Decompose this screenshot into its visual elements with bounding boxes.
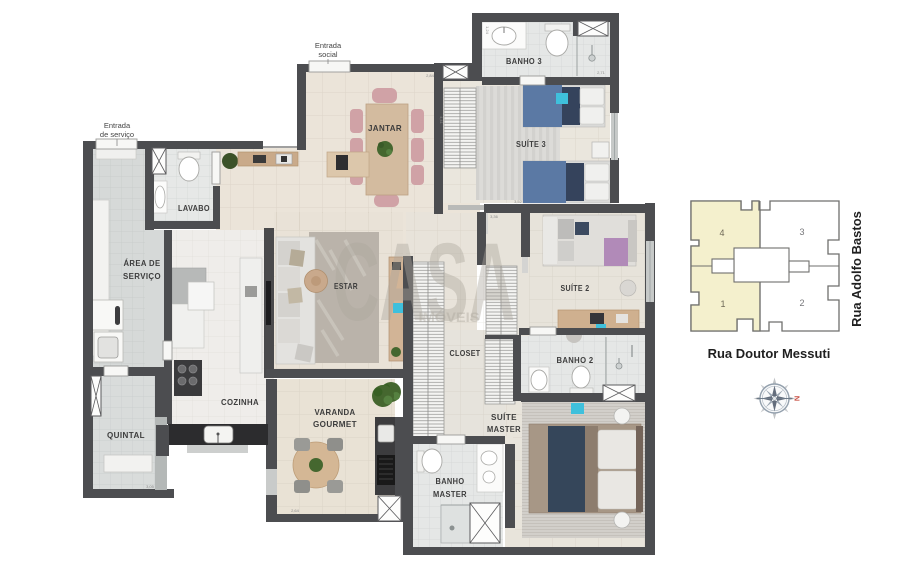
svg-text:MASTER: MASTER	[433, 490, 467, 499]
svg-text:CASA: CASA	[333, 221, 515, 344]
svg-text:CLOSET: CLOSET	[450, 348, 481, 358]
svg-text:N: N	[793, 396, 802, 401]
svg-text:SUÍTE 3: SUÍTE 3	[516, 140, 546, 149]
svg-text:1: 1	[720, 299, 725, 309]
svg-text:social: social	[318, 50, 338, 59]
svg-text:1,24: 1,24	[485, 26, 490, 35]
svg-text:VARANDA: VARANDA	[315, 407, 356, 417]
svg-text:MASTER: MASTER	[487, 425, 521, 434]
svg-text:ESTAR: ESTAR	[334, 281, 358, 291]
svg-text:2,84: 2,84	[426, 73, 435, 78]
svg-text:BANHO 3: BANHO 3	[506, 57, 542, 66]
svg-text:GOURMET: GOURMET	[313, 419, 357, 429]
svg-text:LAVABO: LAVABO	[178, 204, 210, 213]
svg-text:BANHO: BANHO	[436, 477, 465, 486]
svg-text:2,71: 2,71	[597, 70, 606, 75]
svg-text:4,41: 4,41	[439, 116, 444, 125]
svg-text:Entrada: Entrada	[315, 41, 342, 50]
svg-text:QUINTAL: QUINTAL	[107, 431, 145, 440]
svg-text:SUÍTE 2: SUÍTE 2	[561, 284, 590, 293]
svg-text:BANHO 2: BANHO 2	[557, 355, 594, 365]
svg-text:IMÓVEIS: IMÓVEIS	[419, 310, 480, 325]
svg-text:3,05: 3,05	[146, 484, 155, 489]
svg-text:Rua Doutor Messuti: Rua Doutor Messuti	[708, 346, 831, 361]
svg-text:3: 3	[799, 227, 804, 237]
svg-text:Rua Adolfo Bastos: Rua Adolfo Bastos	[849, 211, 864, 327]
svg-text:Entrada: Entrada	[104, 121, 131, 130]
svg-text:3,52: 3,52	[514, 199, 523, 204]
svg-text:2: 2	[799, 298, 804, 308]
svg-text:ÁREA DE: ÁREA DE	[124, 259, 161, 268]
svg-text:3,36: 3,36	[490, 214, 499, 219]
svg-text:2,64: 2,64	[291, 508, 300, 513]
svg-text:SUÍTE: SUÍTE	[491, 413, 517, 422]
svg-text:COZINHA: COZINHA	[221, 397, 259, 407]
svg-text:JANTAR: JANTAR	[368, 123, 402, 133]
svg-text:4: 4	[719, 228, 724, 238]
svg-text:de serviço: de serviço	[100, 130, 134, 139]
svg-text:SERVIÇO: SERVIÇO	[123, 272, 161, 281]
